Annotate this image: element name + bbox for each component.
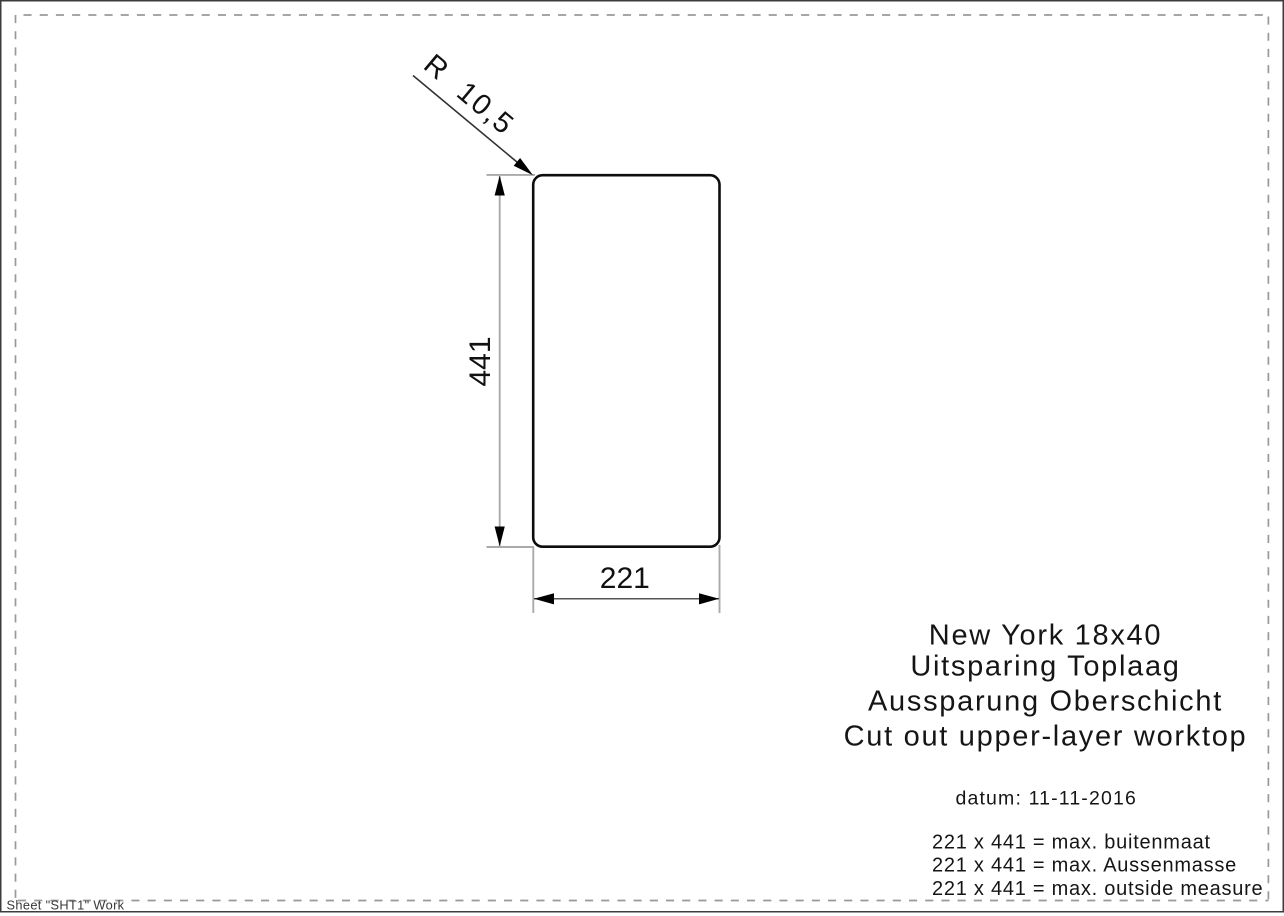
- svg-text:New York 18x40: New York 18x40: [929, 619, 1162, 651]
- svg-text:R 10,5: R 10,5: [418, 48, 521, 142]
- svg-text:Aussparung Oberschicht: Aussparung Oberschicht: [868, 685, 1223, 717]
- svg-text:Uitsparing Toplaag: Uitsparing Toplaag: [910, 650, 1180, 682]
- svg-text:Sheet "SHT1" Work: Sheet "SHT1" Work: [7, 898, 125, 913]
- svg-text:221: 221: [600, 562, 650, 595]
- svg-text:221 x 441 = max. outside measu: 221 x 441 = max. outside measure: [932, 878, 1263, 900]
- svg-text:Cut out upper-layer worktop: Cut out upper-layer worktop: [844, 720, 1248, 752]
- svg-text:221 x 441 = max. Aussenmasse: 221 x 441 = max. Aussenmasse: [932, 855, 1237, 877]
- svg-text:441: 441: [464, 336, 497, 386]
- svg-text:221 x 441 = max. buitenmaat: 221 x 441 = max. buitenmaat: [932, 831, 1211, 853]
- svg-text:datum: 11-11-2016: datum: 11-11-2016: [956, 788, 1137, 810]
